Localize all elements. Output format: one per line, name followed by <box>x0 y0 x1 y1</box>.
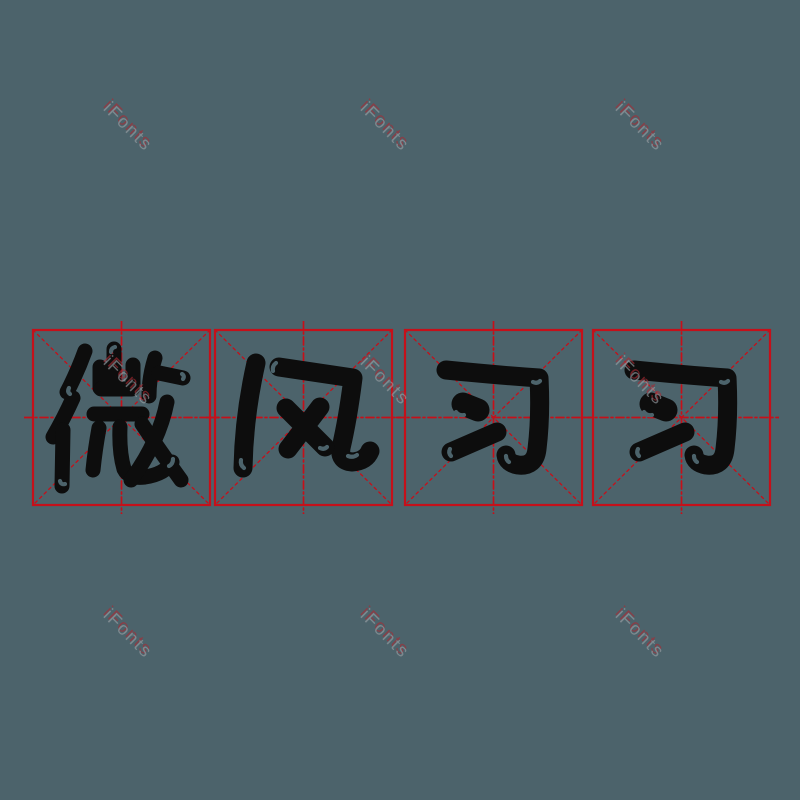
mizige-cell-1 <box>24 321 219 514</box>
font-preview-canvas: iFontsiFontsiFontsiFontsiFontsiFontsiFon… <box>0 0 800 800</box>
glyph-stroke <box>451 432 497 452</box>
glyph-stroke <box>62 430 63 486</box>
glyph-glint <box>637 449 639 456</box>
ifonts-watermark: iFonts <box>611 98 669 156</box>
mizige-cell-4 <box>584 321 779 514</box>
glyph-stroke <box>243 363 256 468</box>
glyph-glint <box>182 374 184 379</box>
glyph-glint <box>449 449 451 456</box>
glyph-glint <box>533 381 540 383</box>
glyph-stroke <box>67 351 85 392</box>
glyph-stroke <box>93 428 99 470</box>
glyph-stroke <box>463 404 478 410</box>
ifonts-watermark: iFonts <box>99 98 157 156</box>
mizige-cell-3 <box>396 321 591 514</box>
glyph-glint <box>68 388 70 394</box>
ifonts-watermark: iFonts <box>611 605 669 663</box>
glyph-glint <box>721 381 728 383</box>
glyph-stroke <box>639 432 685 452</box>
ifonts-watermark: iFonts <box>356 98 414 156</box>
glyph-stroke <box>651 404 666 410</box>
glyph-glint <box>320 447 327 449</box>
ifonts-watermark: iFonts <box>99 605 157 663</box>
mizige-cell-2 <box>206 321 401 514</box>
glyph-glint <box>348 455 357 457</box>
ifonts-watermark: iFonts <box>356 605 414 663</box>
glyph-stroke <box>159 373 183 378</box>
